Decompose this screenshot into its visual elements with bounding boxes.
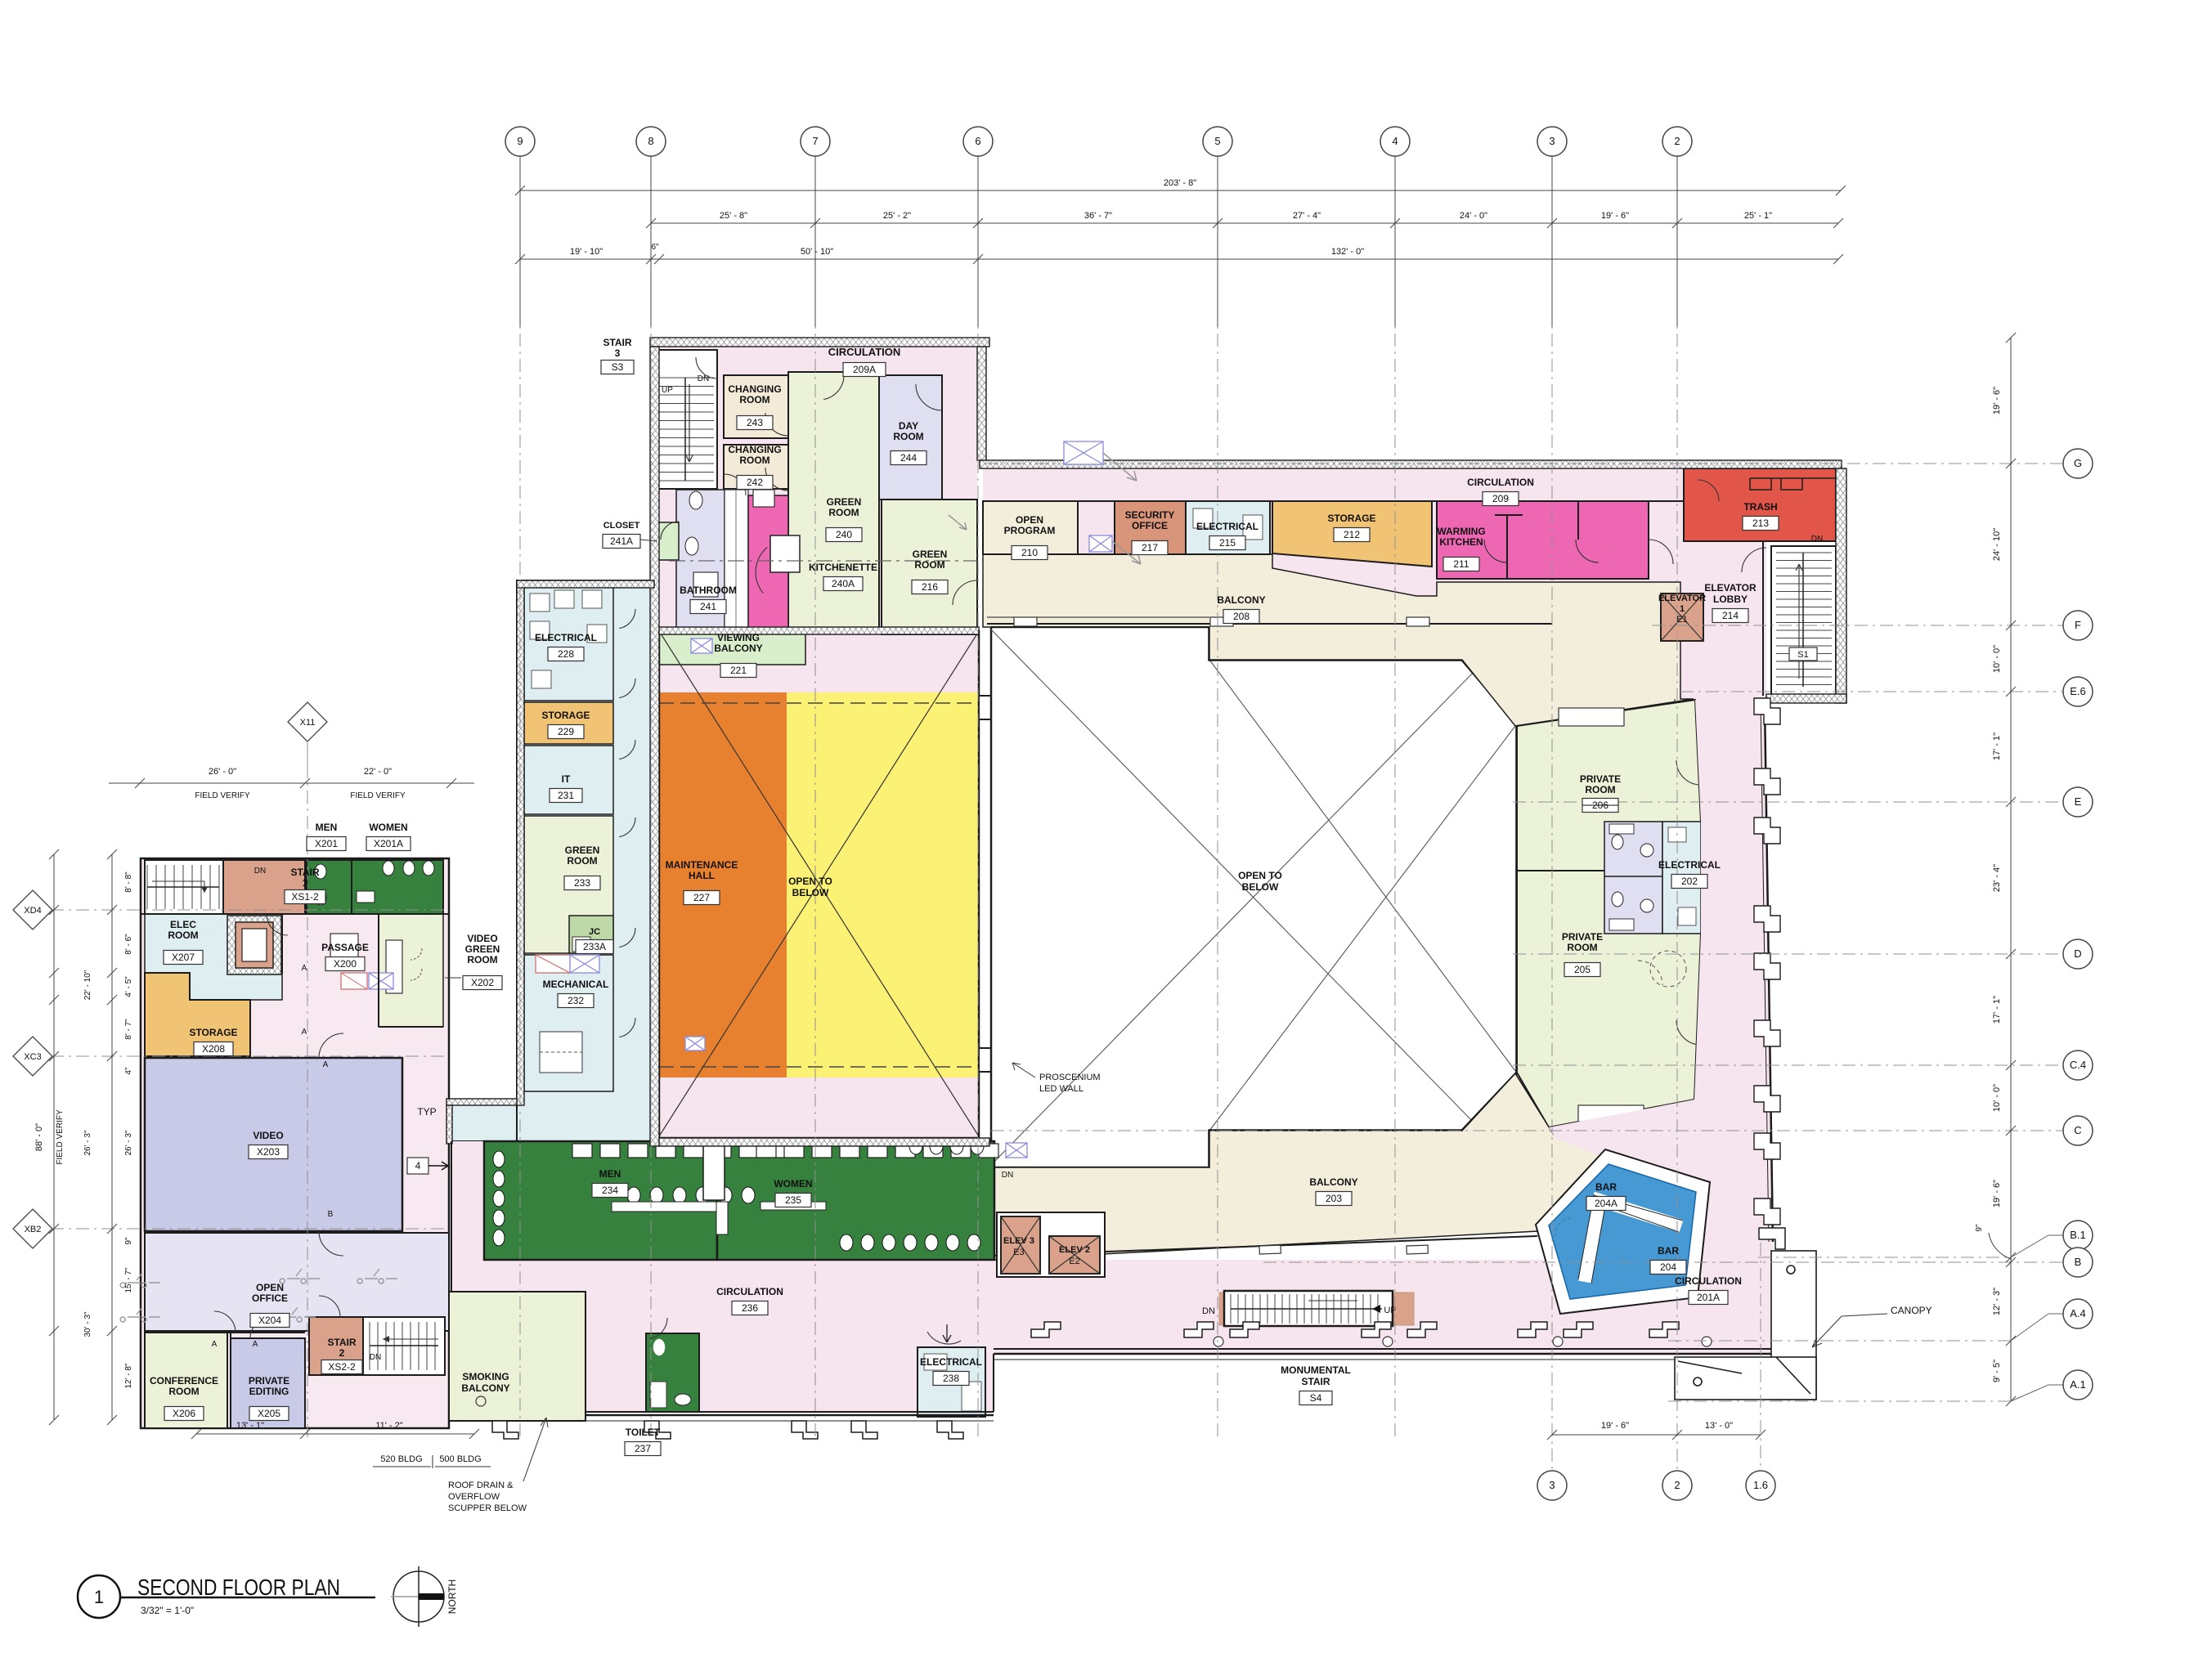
svg-text:LED WALL: LED WALL xyxy=(1039,1084,1084,1094)
svg-text:24' - 0": 24' - 0" xyxy=(1460,211,1487,221)
svg-text:232: 232 xyxy=(568,995,584,1006)
svg-text:A: A xyxy=(302,964,307,973)
svg-text:X201A: X201A xyxy=(374,838,403,849)
svg-text:DN: DN xyxy=(1811,535,1823,544)
svg-text:ELECTRICAL: ELECTRICAL xyxy=(920,1356,982,1368)
svg-text:OFFICE: OFFICE xyxy=(252,1292,288,1304)
svg-text:CIRCULATION: CIRCULATION xyxy=(716,1286,783,1297)
svg-text:F: F xyxy=(2075,619,2081,631)
svg-text:OFFICE: OFFICE xyxy=(1132,520,1168,531)
svg-text:FIELD VERIFY: FIELD VERIFY xyxy=(350,791,406,800)
svg-text:26' - 3": 26' - 3" xyxy=(124,1130,133,1155)
svg-text:CANOPY: CANOPY xyxy=(1891,1305,1932,1316)
svg-text:204A: 204A xyxy=(1595,1198,1617,1209)
svg-text:XC3: XC3 xyxy=(24,1052,41,1062)
svg-text:BELOW: BELOW xyxy=(1242,881,1279,893)
svg-text:233A: 233A xyxy=(583,941,606,952)
svg-text:B.1: B.1 xyxy=(2070,1229,2086,1241)
svg-text:ROOM: ROOM xyxy=(739,455,769,466)
svg-text:520 BLDG: 520 BLDG xyxy=(380,1454,422,1464)
svg-text:FIELD VERIFY: FIELD VERIFY xyxy=(56,1109,65,1165)
svg-text:50' - 10": 50' - 10" xyxy=(801,247,833,257)
svg-text:8' - 8": 8' - 8" xyxy=(124,871,133,893)
svg-text:2: 2 xyxy=(1674,135,1680,147)
svg-text:OPEN: OPEN xyxy=(256,1282,284,1293)
svg-text:9": 9" xyxy=(1975,1224,1984,1232)
svg-text:12' - 8": 12' - 8" xyxy=(124,1363,133,1388)
svg-text:237: 237 xyxy=(635,1443,651,1454)
svg-text:HALL: HALL xyxy=(689,870,715,881)
svg-text:BELOW: BELOW xyxy=(792,887,829,898)
svg-text:1.6: 1.6 xyxy=(1753,1479,1768,1491)
svg-text:ELEV 3: ELEV 3 xyxy=(1003,1236,1034,1246)
svg-text:DN: DN xyxy=(370,1353,381,1362)
svg-text:A: A xyxy=(323,1060,329,1069)
svg-text:VIDEO: VIDEO xyxy=(253,1130,283,1141)
svg-text:A.1: A.1 xyxy=(2070,1378,2086,1391)
svg-text:SECURITY: SECURITY xyxy=(1125,509,1175,521)
svg-text:A: A xyxy=(302,1028,307,1037)
svg-text:11' - 2": 11' - 2" xyxy=(375,1421,402,1431)
svg-text:212: 212 xyxy=(1344,529,1360,540)
svg-text:233: 233 xyxy=(574,877,590,889)
svg-text:FIELD VERIFY: FIELD VERIFY xyxy=(195,791,250,800)
svg-text:JC: JC xyxy=(589,927,600,937)
svg-text:ROOF DRAIN &: ROOF DRAIN & xyxy=(448,1481,514,1490)
svg-text:DN: DN xyxy=(254,867,266,876)
svg-text:VIEWING: VIEWING xyxy=(717,632,760,643)
svg-text:13' - 0": 13' - 0" xyxy=(1705,1421,1733,1431)
svg-text:MAINTENANCE: MAINTENANCE xyxy=(666,859,738,871)
svg-text:STAIR: STAIR xyxy=(603,337,631,348)
svg-text:216: 216 xyxy=(922,581,938,593)
svg-text:GREEN: GREEN xyxy=(465,943,500,955)
svg-text:E.6: E.6 xyxy=(2070,685,2086,697)
svg-text:3: 3 xyxy=(615,347,621,359)
svg-text:STAIR: STAIR xyxy=(1301,1376,1330,1387)
svg-text:XB2: XB2 xyxy=(25,1225,42,1234)
svg-text:PROGRAM: PROGRAM xyxy=(1004,525,1056,536)
svg-text:229: 229 xyxy=(558,726,574,737)
svg-text:235: 235 xyxy=(785,1194,801,1206)
svg-text:241A: 241A xyxy=(610,535,633,547)
svg-text:8' - 6": 8' - 6" xyxy=(124,934,133,955)
svg-text:243: 243 xyxy=(747,417,763,428)
svg-text:CHANGING: CHANGING xyxy=(728,444,781,455)
svg-text:BALCONY: BALCONY xyxy=(1309,1176,1357,1188)
svg-text:25' - 1": 25' - 1" xyxy=(1744,211,1772,221)
svg-text:201A: 201A xyxy=(1697,1292,1720,1303)
svg-text:X206: X206 xyxy=(173,1408,195,1419)
svg-text:26' - 3": 26' - 3" xyxy=(83,1130,92,1155)
svg-text:PRIVATE: PRIVATE xyxy=(1580,773,1621,785)
svg-text:ELEVATOR: ELEVATOR xyxy=(1704,582,1757,594)
svg-text:SCUPPER BELOW: SCUPPER BELOW xyxy=(448,1503,527,1513)
svg-text:6: 6 xyxy=(975,135,980,147)
svg-text:209: 209 xyxy=(1492,493,1509,504)
svg-text:E1: E1 xyxy=(1676,615,1687,625)
svg-text:OPEN: OPEN xyxy=(1016,514,1043,526)
svg-text:WOMEN: WOMEN xyxy=(774,1178,812,1189)
svg-text:GREEN: GREEN xyxy=(913,549,948,560)
svg-text:CONFERENCE: CONFERENCE xyxy=(150,1375,218,1387)
svg-text:17' - 1": 17' - 1" xyxy=(1992,996,2002,1024)
svg-text:S1: S1 xyxy=(1797,650,1808,660)
svg-text:EDITING: EDITING xyxy=(249,1386,289,1397)
svg-text:X11: X11 xyxy=(300,718,316,728)
svg-text:TOILET: TOILET xyxy=(626,1427,661,1438)
svg-text:ROOM: ROOM xyxy=(739,394,769,405)
svg-text:A: A xyxy=(253,1340,258,1349)
svg-text:GREEN: GREEN xyxy=(565,844,600,856)
svg-text:WOMEN: WOMEN xyxy=(369,822,407,833)
svg-text:3: 3 xyxy=(1549,135,1555,147)
svg-text:12' - 3": 12' - 3" xyxy=(1992,1288,2002,1315)
svg-text:OPEN TO: OPEN TO xyxy=(1238,870,1282,881)
svg-text:TYP: TYP xyxy=(417,1106,436,1118)
svg-text:NORTH: NORTH xyxy=(446,1579,458,1614)
svg-text:UP: UP xyxy=(1384,1306,1396,1315)
svg-text:231: 231 xyxy=(558,790,574,801)
svg-text:C: C xyxy=(2074,1124,2081,1136)
svg-text:242: 242 xyxy=(747,477,763,488)
svg-text:215: 215 xyxy=(1219,537,1236,549)
svg-text:9: 9 xyxy=(517,135,523,147)
svg-text:500 BLDG: 500 BLDG xyxy=(439,1454,481,1464)
svg-text:ROOM: ROOM xyxy=(567,855,597,867)
svg-text:MEN: MEN xyxy=(316,822,338,833)
svg-text:D: D xyxy=(2074,948,2081,960)
svg-text:DAY: DAY xyxy=(899,420,918,432)
svg-text:19' - 6": 19' - 6" xyxy=(1601,211,1629,221)
svg-text:GREEN: GREEN xyxy=(827,496,862,508)
svg-text:19' - 10": 19' - 10" xyxy=(570,247,603,257)
svg-text:4: 4 xyxy=(415,1160,421,1172)
svg-text:24' - 10": 24' - 10" xyxy=(1992,528,2002,561)
svg-text:ELECTRICAL: ELECTRICAL xyxy=(1196,521,1259,532)
svg-text:8: 8 xyxy=(648,135,653,147)
svg-text:X200: X200 xyxy=(334,958,357,970)
svg-text:CHANGING: CHANGING xyxy=(728,383,781,395)
svg-text:ROOM: ROOM xyxy=(828,507,859,518)
svg-text:OVERFLOW: OVERFLOW xyxy=(448,1492,500,1502)
svg-text:23' - 4": 23' - 4" xyxy=(1992,864,2002,892)
svg-text:26' - 0": 26' - 0" xyxy=(209,767,236,777)
svg-text:X208: X208 xyxy=(202,1043,225,1055)
svg-text:1: 1 xyxy=(303,877,308,889)
svg-text:228: 228 xyxy=(558,648,574,660)
svg-text:X207: X207 xyxy=(172,952,195,963)
svg-text:VIDEO: VIDEO xyxy=(467,933,497,944)
svg-text:217: 217 xyxy=(1142,542,1158,553)
svg-text:E3: E3 xyxy=(1013,1248,1024,1257)
svg-text:238: 238 xyxy=(943,1373,959,1384)
svg-text:PASSAGE: PASSAGE xyxy=(321,942,369,953)
svg-text:1: 1 xyxy=(1680,604,1685,614)
svg-text:36' - 7": 36' - 7" xyxy=(1084,211,1112,221)
svg-text:X202: X202 xyxy=(471,977,494,988)
svg-text:10' - 0": 10' - 0" xyxy=(1992,645,2002,673)
svg-text:SMOKING: SMOKING xyxy=(462,1371,509,1382)
svg-text:STORAGE: STORAGE xyxy=(541,710,590,721)
svg-text:4: 4 xyxy=(1392,135,1398,147)
svg-text:DN: DN xyxy=(1202,1306,1215,1316)
svg-text:208: 208 xyxy=(1233,611,1250,622)
svg-text:3/32" = 1'-0": 3/32" = 1'-0" xyxy=(141,1605,194,1616)
svg-text:TRASH: TRASH xyxy=(1743,501,1777,513)
svg-text:MECHANICAL: MECHANICAL xyxy=(543,979,609,990)
svg-text:204: 204 xyxy=(1660,1261,1676,1273)
svg-text:BALCONY: BALCONY xyxy=(461,1382,509,1394)
svg-text:ROOM: ROOM xyxy=(1567,942,1597,953)
svg-text:LOBBY: LOBBY xyxy=(1713,594,1748,605)
svg-text:PROSCENIUM: PROSCENIUM xyxy=(1039,1073,1101,1082)
svg-text:210: 210 xyxy=(1021,547,1038,558)
svg-text:ROOM: ROOM xyxy=(893,431,923,442)
svg-text:G: G xyxy=(2074,457,2082,469)
svg-text:25' - 2": 25' - 2" xyxy=(883,211,911,221)
svg-text:KITCHENETTE: KITCHENETTE xyxy=(809,562,877,573)
svg-text:209A: 209A xyxy=(853,364,876,375)
svg-text:ROOM: ROOM xyxy=(1585,784,1615,795)
svg-text:19' - 6": 19' - 6" xyxy=(1992,1180,2002,1207)
svg-text:203: 203 xyxy=(1326,1193,1342,1204)
svg-text:XD4: XD4 xyxy=(24,906,41,916)
svg-text:202: 202 xyxy=(1681,876,1698,887)
svg-text:STORAGE: STORAGE xyxy=(1327,513,1375,524)
svg-text:PRIVATE: PRIVATE xyxy=(249,1375,289,1387)
svg-text:30' - 3": 30' - 3" xyxy=(83,1311,92,1337)
svg-text:E: E xyxy=(2075,795,2082,808)
svg-text:244: 244 xyxy=(900,452,917,464)
svg-text:ROOM: ROOM xyxy=(168,1386,199,1397)
svg-text:ELECTRICAL: ELECTRICAL xyxy=(1658,859,1721,871)
svg-text:CLOSET: CLOSET xyxy=(603,521,640,531)
svg-text:E2: E2 xyxy=(1069,1257,1079,1266)
svg-text:BATHROOM: BATHROOM xyxy=(680,585,737,596)
svg-text:7: 7 xyxy=(812,135,818,147)
svg-text:UP: UP xyxy=(662,386,673,395)
svg-text:BAR: BAR xyxy=(1595,1181,1617,1193)
svg-text:8' - 7": 8' - 7" xyxy=(124,1019,133,1040)
svg-text:213: 213 xyxy=(1752,517,1769,529)
svg-text:9": 9" xyxy=(124,1237,133,1245)
svg-text:X201: X201 xyxy=(315,838,338,849)
svg-text:X203: X203 xyxy=(257,1146,280,1158)
svg-text:17' - 1": 17' - 1" xyxy=(1992,732,2002,760)
svg-text:IT: IT xyxy=(562,773,571,785)
svg-text:XS1-2: XS1-2 xyxy=(291,891,319,903)
svg-text:DN: DN xyxy=(1002,1171,1013,1180)
svg-text:B: B xyxy=(328,1210,334,1219)
svg-text:SECOND FLOOR PLAN: SECOND FLOOR PLAN xyxy=(137,1575,340,1600)
svg-text:CIRCULATION: CIRCULATION xyxy=(1467,477,1534,488)
svg-text:BALCONY: BALCONY xyxy=(714,643,762,654)
svg-text:241: 241 xyxy=(700,601,716,612)
svg-text:22' - 10": 22' - 10" xyxy=(83,970,92,1000)
svg-text:13' - 1": 13' - 1" xyxy=(236,1421,264,1431)
svg-text:A: A xyxy=(212,1340,218,1349)
svg-text:2: 2 xyxy=(339,1347,345,1359)
svg-text:BALCONY: BALCONY xyxy=(1217,594,1265,606)
svg-text:19' - 6": 19' - 6" xyxy=(1601,1421,1629,1431)
svg-text:88' - 0": 88' - 0" xyxy=(34,1123,44,1151)
svg-text:WARMING: WARMING xyxy=(1437,526,1485,537)
svg-text:MEN: MEN xyxy=(599,1168,621,1180)
svg-text:CIRCULATION: CIRCULATION xyxy=(828,346,901,358)
svg-text:S4: S4 xyxy=(1310,1392,1322,1404)
svg-text:1: 1 xyxy=(94,1587,104,1607)
svg-text:240: 240 xyxy=(836,529,852,540)
svg-text:2: 2 xyxy=(1674,1479,1680,1491)
svg-text:240A: 240A xyxy=(832,578,855,589)
svg-text:227: 227 xyxy=(693,892,710,903)
svg-text:205: 205 xyxy=(1574,964,1591,975)
svg-text:S3: S3 xyxy=(612,361,624,373)
svg-text:CIRCULATION: CIRCULATION xyxy=(1675,1275,1742,1287)
svg-text:5: 5 xyxy=(1214,135,1220,147)
svg-text:BAR: BAR xyxy=(1658,1245,1679,1257)
svg-text:KITCHEN: KITCHEN xyxy=(1439,536,1483,548)
svg-text:ELECTRICAL: ELECTRICAL xyxy=(535,632,597,643)
svg-text:236: 236 xyxy=(742,1302,758,1314)
svg-text:ELEVATOR: ELEVATOR xyxy=(1658,594,1706,603)
svg-text:10' - 0": 10' - 0" xyxy=(1992,1084,2002,1112)
svg-text:211: 211 xyxy=(1453,558,1469,570)
svg-text:15' - 7": 15' - 7" xyxy=(124,1267,133,1292)
svg-text:X205: X205 xyxy=(258,1408,280,1419)
svg-text:ROOM: ROOM xyxy=(467,954,497,965)
svg-text:OPEN TO: OPEN TO xyxy=(788,876,832,887)
svg-text:203' - 8": 203' - 8" xyxy=(1164,178,1196,188)
svg-text:19' - 6": 19' - 6" xyxy=(1992,387,2002,414)
svg-text:ELEC: ELEC xyxy=(170,919,196,930)
svg-text:STAIR: STAIR xyxy=(327,1337,356,1348)
svg-text:4": 4" xyxy=(124,1067,133,1075)
svg-text:132' - 0": 132' - 0" xyxy=(1331,247,1364,257)
svg-text:221: 221 xyxy=(730,665,747,676)
svg-text:214: 214 xyxy=(1722,610,1739,621)
svg-text:ROOM: ROOM xyxy=(914,559,944,571)
svg-text:STAIR: STAIR xyxy=(290,867,319,878)
svg-text:A.4: A.4 xyxy=(2070,1307,2086,1319)
svg-text:PRIVATE: PRIVATE xyxy=(1562,931,1603,943)
svg-text:9' - 5": 9' - 5" xyxy=(1992,1360,2002,1382)
svg-text:6": 6" xyxy=(651,243,659,252)
svg-text:25' - 8": 25' - 8" xyxy=(720,211,747,221)
svg-text:MONUMENTAL: MONUMENTAL xyxy=(1281,1364,1351,1376)
svg-text:C.4: C.4 xyxy=(2070,1059,2086,1071)
svg-text:ELEV 2: ELEV 2 xyxy=(1059,1245,1090,1255)
svg-text:234: 234 xyxy=(602,1185,618,1196)
svg-text:27' - 4": 27' - 4" xyxy=(1293,211,1321,221)
svg-text:3: 3 xyxy=(1549,1479,1555,1491)
svg-text:XS2-2: XS2-2 xyxy=(328,1361,356,1373)
svg-text:X204: X204 xyxy=(258,1315,281,1326)
svg-text:4' - 5": 4' - 5" xyxy=(124,976,133,997)
svg-text:B: B xyxy=(2075,1256,2082,1268)
svg-text:STORAGE: STORAGE xyxy=(189,1027,237,1038)
svg-text:ROOM: ROOM xyxy=(168,930,198,941)
svg-text:22' - 0": 22' - 0" xyxy=(364,767,392,777)
